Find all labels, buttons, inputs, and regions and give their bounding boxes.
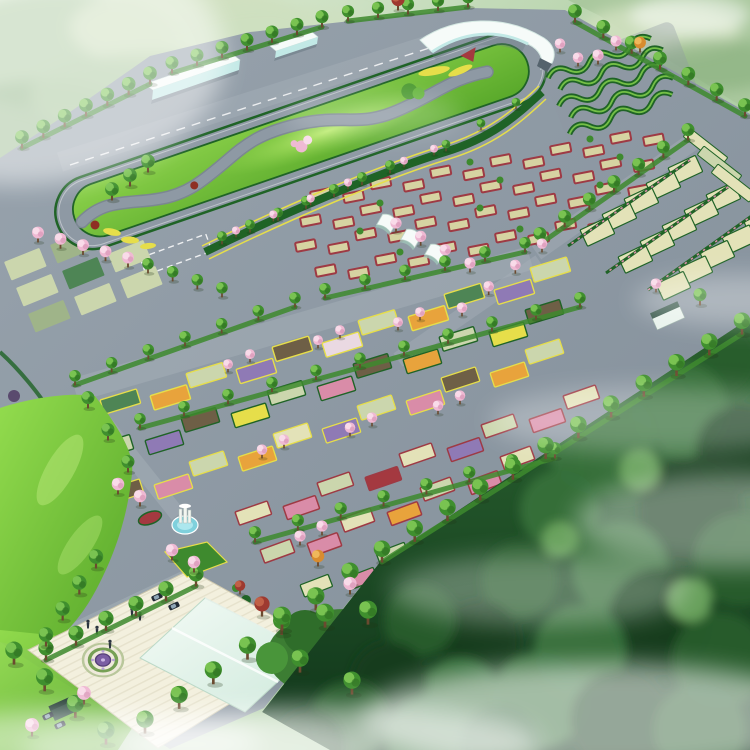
shrub xyxy=(377,200,384,207)
plaza-medallion xyxy=(83,644,123,677)
rendering-stage: Aerial master-plan rendering: landscaped… xyxy=(0,0,750,750)
shrub xyxy=(517,226,524,233)
shrub xyxy=(477,205,484,212)
shrub xyxy=(397,249,404,256)
shrub xyxy=(467,159,474,166)
mist-patch xyxy=(282,94,462,138)
forest-canopy xyxy=(542,522,578,558)
red-shrub xyxy=(91,221,100,230)
shrub xyxy=(8,390,20,402)
shrub xyxy=(587,136,594,143)
shrub xyxy=(497,177,504,184)
mist-patch xyxy=(390,554,690,626)
shrub xyxy=(617,154,624,161)
shrub xyxy=(357,228,364,235)
aerial-site-rendering: Aerial master-plan rendering: landscaped… xyxy=(0,0,750,750)
shrub xyxy=(597,182,604,189)
